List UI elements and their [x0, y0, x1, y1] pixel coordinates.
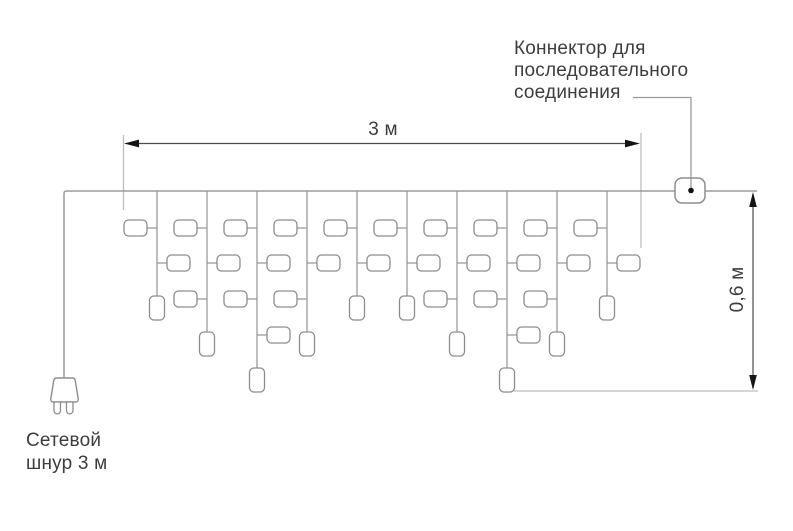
height-dimension-arrow-top	[749, 192, 757, 207]
power-cord-label-line1: Сетевой	[26, 429, 107, 452]
bulb	[224, 291, 247, 307]
connector-leader-line	[633, 98, 691, 189]
connector-label: Коннектор для последовательного соединен…	[514, 38, 688, 104]
bulb	[524, 220, 547, 236]
bulb	[124, 220, 147, 236]
connector-label-line3: соединения	[514, 82, 688, 104]
end-bulb	[550, 332, 565, 356]
bulb	[367, 255, 390, 271]
bulb	[174, 220, 197, 236]
bulb	[317, 255, 340, 271]
bulb	[474, 220, 497, 236]
bulb	[417, 255, 440, 271]
bulb	[467, 255, 490, 271]
height-dimension-label: 0,6 м	[727, 249, 748, 330]
connector-dot	[688, 188, 694, 194]
end-bulb	[300, 332, 315, 356]
bulb	[167, 255, 190, 271]
bulb	[517, 255, 540, 271]
garland-wire	[64, 191, 675, 378]
bulb	[217, 255, 240, 271]
end-bulb	[150, 296, 165, 320]
bulb	[274, 220, 297, 236]
bulb	[574, 220, 597, 236]
width-dimension-arrow-left	[124, 140, 139, 148]
end-bulb	[500, 368, 515, 392]
power-plug-icon	[51, 378, 79, 402]
end-bulb	[400, 296, 415, 320]
end-bulb	[250, 368, 265, 392]
plug-prong-right	[67, 402, 74, 414]
connector-label-line2: последовательного	[514, 60, 688, 82]
power-cord-label-line2: шнур 3 м	[26, 452, 107, 475]
bulb	[424, 291, 447, 307]
plug-prong-left	[54, 402, 61, 414]
bulb	[324, 220, 347, 236]
bulb	[374, 220, 397, 236]
end-bulb	[450, 332, 465, 356]
bulb	[517, 327, 540, 343]
bulb	[567, 255, 590, 271]
power-cord-label: Сетевой шнур 3 м	[26, 429, 107, 475]
bulb	[267, 255, 290, 271]
bulb	[617, 255, 640, 271]
bulb	[224, 220, 247, 236]
bulb	[267, 327, 290, 343]
width-dimension-label: 3 м	[353, 119, 413, 141]
height-dimension-arrow-bottom	[749, 375, 757, 390]
bulb	[174, 291, 197, 307]
diagram-canvas: Коннектор для последовательного соединен…	[0, 0, 793, 531]
bulb	[274, 291, 297, 307]
bulb	[474, 291, 497, 307]
end-bulb	[200, 332, 215, 356]
end-bulb	[600, 296, 615, 320]
bulb	[424, 220, 447, 236]
end-bulb	[350, 296, 365, 320]
bulb	[524, 291, 547, 307]
connector-label-line1: Коннектор для	[514, 38, 688, 60]
width-dimension-arrow-right	[625, 140, 640, 148]
